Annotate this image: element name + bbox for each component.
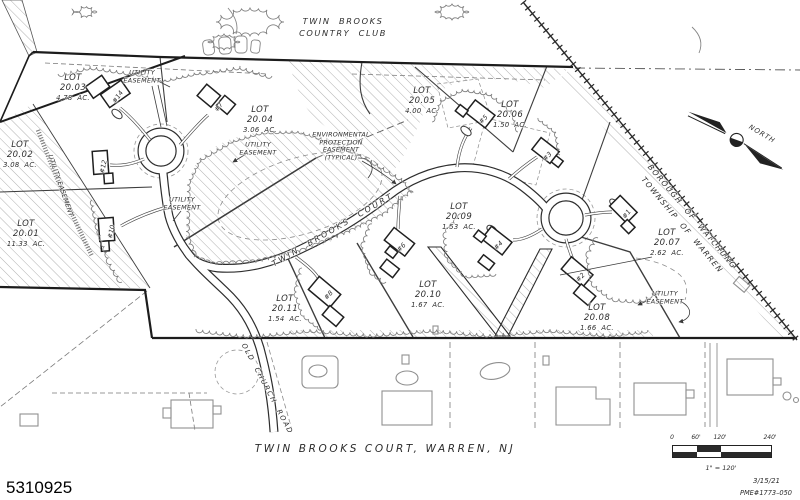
scale-tick: 60'	[691, 434, 700, 441]
scale-ratio: 1" = 120'	[706, 464, 737, 472]
north-arrow-icon	[680, 111, 791, 172]
scale-bar: 0 60' 120' 240' 1" = 120' 3/15/21 PME#17…	[672, 434, 794, 500]
scale-tick: 0	[670, 434, 674, 441]
plan-reference: PME#1773–050	[740, 489, 792, 497]
hatch-areas	[0, 0, 797, 338]
scale-tick: 240'	[763, 434, 776, 441]
municipal-boundary-line	[523, 2, 797, 340]
scale-tick: 120'	[713, 434, 726, 441]
listing-number: 5310925	[6, 478, 72, 498]
golf-course-details	[202, 8, 701, 56]
scale-bar-graphic	[672, 445, 772, 458]
map-caption: TWIN BROOKS COURT, WARREN, NJ	[255, 443, 516, 455]
plat-map-image: TWIN BROOKSCOUNTRY CLUB ENVIRONMENTALPRO…	[0, 0, 800, 500]
map-linework	[0, 0, 800, 500]
map-date: 3/15/21	[753, 477, 780, 485]
